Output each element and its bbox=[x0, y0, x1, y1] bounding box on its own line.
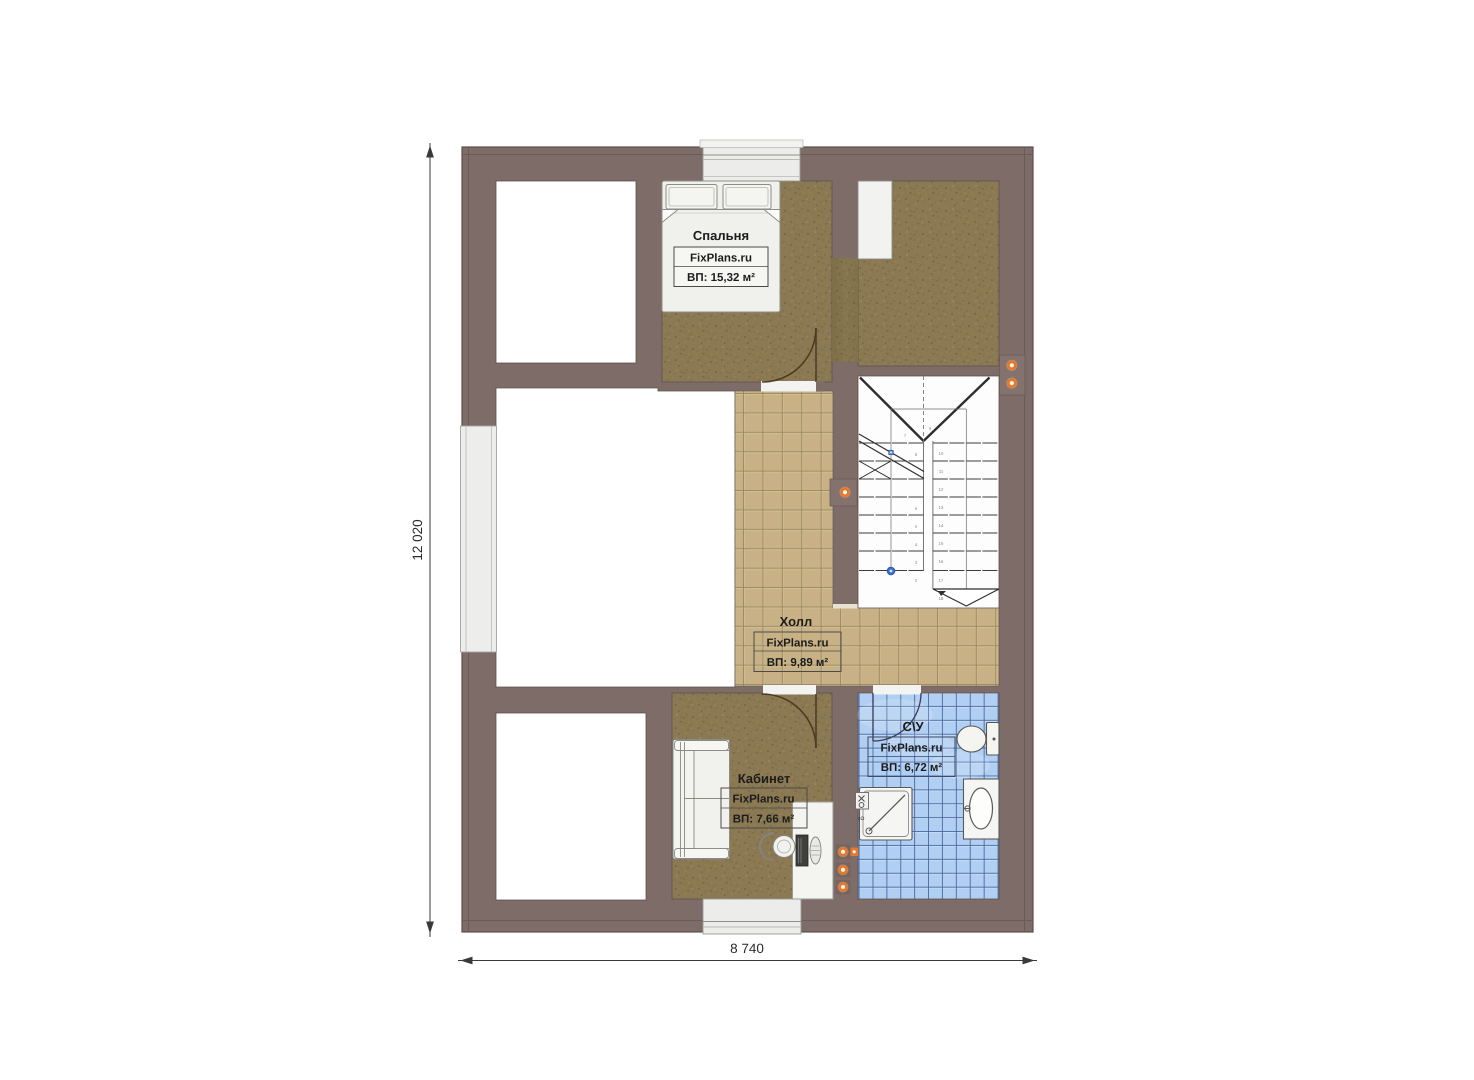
svg-text:Холл: Холл bbox=[780, 614, 813, 629]
svg-text:FixPlans.ru: FixPlans.ru bbox=[690, 253, 752, 265]
svg-text:15: 15 bbox=[939, 541, 944, 546]
svg-text:FixPlans.ru: FixPlans.ru bbox=[733, 794, 795, 806]
svg-text:10: 10 bbox=[939, 451, 944, 456]
svg-text:14: 14 bbox=[939, 523, 944, 528]
svg-text:ВП: 9,89 м²: ВП: 9,89 м² bbox=[767, 657, 829, 669]
svg-text:18: 18 bbox=[939, 596, 944, 601]
svg-text:FixPlans.ru: FixPlans.ru bbox=[767, 638, 829, 650]
svg-text:11: 11 bbox=[939, 469, 944, 474]
svg-text:Кабинет: Кабинет bbox=[738, 771, 791, 786]
svg-text:12 020: 12 020 bbox=[410, 519, 425, 560]
svg-text:16: 16 bbox=[939, 559, 944, 564]
svg-text:ВП: 7,66 м²: ВП: 7,66 м² bbox=[733, 814, 795, 826]
svg-text:13: 13 bbox=[939, 505, 944, 510]
svg-text:С\У: С\У bbox=[902, 719, 924, 734]
svg-text:12: 12 bbox=[939, 487, 944, 492]
svg-text:17: 17 bbox=[939, 578, 944, 583]
svg-text:FixPlans.ru: FixPlans.ru bbox=[881, 743, 943, 755]
svg-text:Спальня: Спальня bbox=[693, 228, 749, 243]
svg-text:ВП: 15,32 м²: ВП: 15,32 м² bbox=[687, 272, 755, 284]
svg-text:8 740: 8 740 bbox=[730, 941, 764, 956]
svg-text:ВП: 6,72 м²: ВП: 6,72 м² bbox=[881, 762, 943, 774]
svg-text:xО: xО bbox=[858, 816, 865, 822]
